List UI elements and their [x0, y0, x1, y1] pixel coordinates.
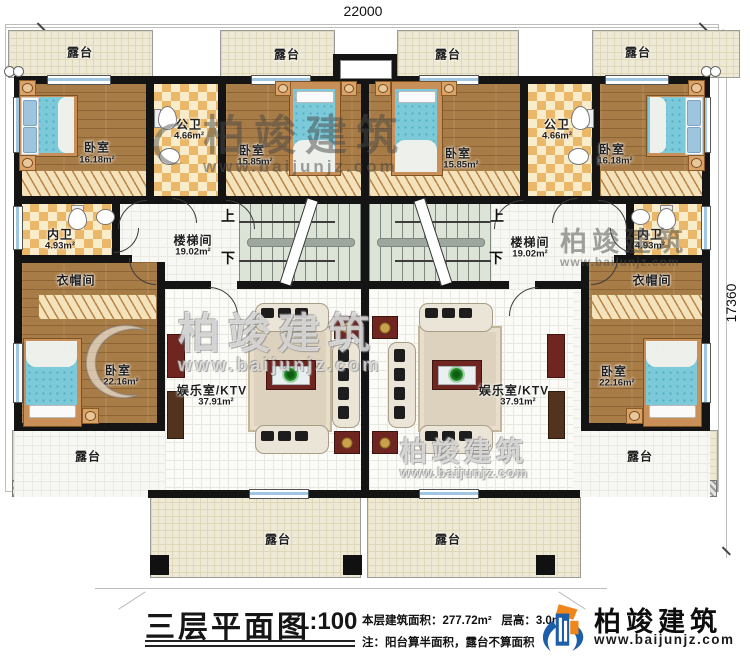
wall-bedroom3-right-left-unit: [157, 262, 165, 431]
nightstand: [688, 155, 705, 171]
bed-pillow: [398, 91, 436, 103]
label-terrace-top-centerright: 露台: [435, 46, 461, 63]
label-cloakroom-left: 衣帽间: [56, 272, 95, 289]
sink-privbath-left: [96, 209, 115, 225]
window-right-privbath: [702, 207, 710, 249]
wall-bedroom3-left-right-unit: [581, 262, 589, 431]
corner-post-circle-4: [710, 66, 721, 77]
wall-ktv-bottom: [148, 490, 580, 498]
sofa-cushion: [459, 308, 472, 318]
bed-pillow: [296, 91, 334, 103]
label-terrace-top-right: 露台: [625, 44, 651, 61]
wall-privbath-bottom-right: [614, 255, 710, 263]
sideboard-right: [548, 391, 565, 439]
window-left-privbath: [14, 207, 22, 249]
tv-cabinet-right: [547, 334, 565, 378]
area-bedroom-top-right: 16.18m²: [597, 156, 632, 167]
speaker-left-bottom: [334, 431, 360, 454]
sofa-cushion: [261, 308, 274, 318]
porch-column-center: [343, 555, 362, 575]
nightstand: [341, 81, 357, 96]
sofa-cushion: [442, 431, 455, 441]
window-bottom-ktv-right: [420, 490, 478, 498]
label-stairs-down-left: 下: [221, 248, 235, 268]
wall-privbath-bottom-left: [14, 255, 132, 263]
porch-roof-line: [95, 588, 607, 589]
sofa-cushion: [278, 308, 291, 318]
porch-column-left: [150, 555, 169, 575]
terrace-bottom-left: [150, 494, 361, 578]
bed-pillow: [687, 100, 701, 126]
cloakroom-rack-right: [591, 294, 703, 320]
window-right-bedroom3: [702, 344, 710, 402]
area-bedroom-top-left: 16.18m²: [79, 155, 114, 166]
nightstand: [375, 81, 391, 96]
cloakroom-rack-left: [38, 294, 157, 320]
area-stairwell-right: 19.02m²: [512, 249, 547, 260]
window-bottom-ktv-left: [250, 490, 308, 498]
stair-up-line-right: [395, 221, 491, 223]
area-bedroom-centerright: 15.85m²: [443, 160, 478, 171]
label-stairs-down-right: 下: [489, 248, 503, 268]
tv-cabinet-left: [167, 334, 185, 378]
floor-plan-sheet: 22000 17360: [0, 0, 750, 664]
floor-area-note: 本层建筑面积：277.72m² 层高：3.0m: [362, 612, 562, 628]
window-top-terrace4: [606, 76, 668, 84]
bed-pillow: [29, 405, 76, 418]
nightstand: [688, 80, 705, 96]
area-public-bath-left: 4.66m²: [174, 131, 204, 142]
sofa-cushion: [425, 308, 438, 318]
closet-rack-bedroom-top-right: [600, 170, 705, 198]
bed-blanket: [646, 341, 697, 367]
sofa-cushion: [295, 308, 308, 318]
sofa-cushion: [261, 431, 274, 441]
sofa-cushion: [459, 431, 472, 441]
nightstand: [441, 81, 457, 96]
bed-pillow: [649, 405, 696, 418]
measurement-note: 注：阳台算半面积，露台不算面积: [362, 634, 535, 650]
sofa-cushion: [442, 308, 455, 318]
nightstand: [626, 408, 643, 424]
sofa-cushion: [394, 406, 405, 419]
title-underline-1: [145, 640, 355, 642]
sofa-cushion: [338, 368, 349, 381]
brand-url: www.baijunjz.com: [594, 632, 735, 647]
area-stairwell-left: 19.02m²: [175, 247, 210, 258]
speaker-right-bottom: [372, 431, 398, 454]
label-stairs-up-right: 上: [490, 206, 504, 226]
wall-bath-bed2-left: [218, 76, 226, 204]
nightstand: [275, 81, 291, 96]
bed-blanket: [293, 140, 335, 172]
bed-blanket: [26, 341, 77, 367]
speaker-cone-icon: [380, 322, 391, 333]
label-cloakroom-right: 衣帽间: [632, 272, 671, 289]
bed-pillow: [687, 127, 701, 153]
speaker-cone-icon: [380, 437, 391, 448]
speaker-left-top: [334, 316, 360, 339]
bed-pillow: [23, 127, 37, 153]
label-terrace-mid-right: 露台: [627, 448, 653, 465]
sofa-cushion: [338, 387, 349, 400]
area-private-bath-left: 4.93m²: [45, 241, 75, 252]
area-bedroom-bottom-left: 22.16m²: [103, 377, 138, 388]
sink-pubbath-left: [159, 148, 180, 165]
sofa-cushion: [278, 431, 291, 441]
plant-icon: [284, 368, 297, 381]
toilet-pubbath-right: [571, 106, 590, 130]
area-bedroom-centerleft: 15.85m²: [237, 157, 272, 168]
dimension-height: 17360: [723, 284, 739, 323]
nightstand: [19, 155, 36, 171]
sink-privbath-right: [631, 209, 650, 225]
center-bay-window-glass: [340, 60, 392, 79]
wall-ktv-top-left-a: [165, 281, 211, 289]
porch-roof-diagonal-left: [118, 591, 145, 609]
sofa-cushion: [295, 431, 308, 441]
window-top-terrace1: [48, 76, 110, 84]
window-left-bedroom3: [14, 344, 22, 402]
sofa-cushion: [394, 387, 405, 400]
bed-pillow: [23, 100, 37, 126]
bed-blanket: [650, 97, 666, 153]
sink-pubbath-right: [568, 148, 589, 165]
wall-ktv-top-left-b: [237, 281, 361, 289]
area-private-bath-right: 4.93m²: [635, 241, 665, 252]
speaker-cone-icon: [342, 322, 353, 333]
eave-line-left: [5, 24, 6, 492]
label-terrace-bottom-right: 露台: [435, 531, 461, 548]
nightstand: [19, 80, 36, 96]
sofa-cushion: [394, 368, 405, 381]
label-stairs-up-left: 上: [221, 206, 235, 226]
label-terrace-mid-left: 露台: [75, 448, 101, 465]
label-terrace-bottom-left: 露台: [265, 531, 291, 548]
area-public-bath-right: 4.66m²: [542, 131, 572, 142]
area-ktv-left: 37.91m²: [198, 397, 233, 408]
brand-logo-icon: [538, 598, 590, 654]
speaker-cone-icon: [342, 437, 353, 448]
eave-line-top-outer: [5, 24, 719, 25]
corner-post-circle-2: [13, 66, 24, 77]
dimension-width: 22000: [344, 3, 383, 19]
sofa-cushion: [338, 349, 349, 362]
wall-bed1-bath-left: [146, 76, 154, 204]
bed-blanket: [58, 97, 74, 153]
area-bedroom-bottom-right: 22.16m²: [599, 378, 634, 389]
sofa-cushion: [338, 406, 349, 419]
eave-line-right: [718, 24, 719, 492]
speaker-right-top: [372, 316, 398, 339]
wall-center-party: [361, 80, 369, 498]
eave-line-top-inner: [5, 27, 719, 28]
nightstand: [82, 408, 99, 424]
drawing-scale: 1:100: [296, 608, 357, 636]
closet-rack-bedroom-top-left: [21, 170, 148, 198]
sofa-cushion: [394, 349, 405, 362]
wall-ktv-top-right-b: [535, 281, 581, 289]
plant-icon: [450, 368, 463, 381]
label-terrace-top-centerleft: 露台: [274, 46, 300, 63]
label-bedroom-top-left: 卧室: [84, 139, 110, 156]
porch-column-right: [536, 555, 555, 575]
floor-area-text: 本层建筑面积：277.72m²: [362, 615, 492, 627]
label-terrace-top-left: 露台: [67, 44, 93, 61]
bed-blanket: [395, 140, 437, 172]
wall-bed2-bath-right: [520, 76, 528, 204]
sofa-cushion: [425, 431, 438, 441]
title-underline-2: [145, 645, 355, 647]
toilet-pubbath-left: [158, 106, 177, 130]
area-ktv-right: 37.91m²: [500, 397, 535, 408]
